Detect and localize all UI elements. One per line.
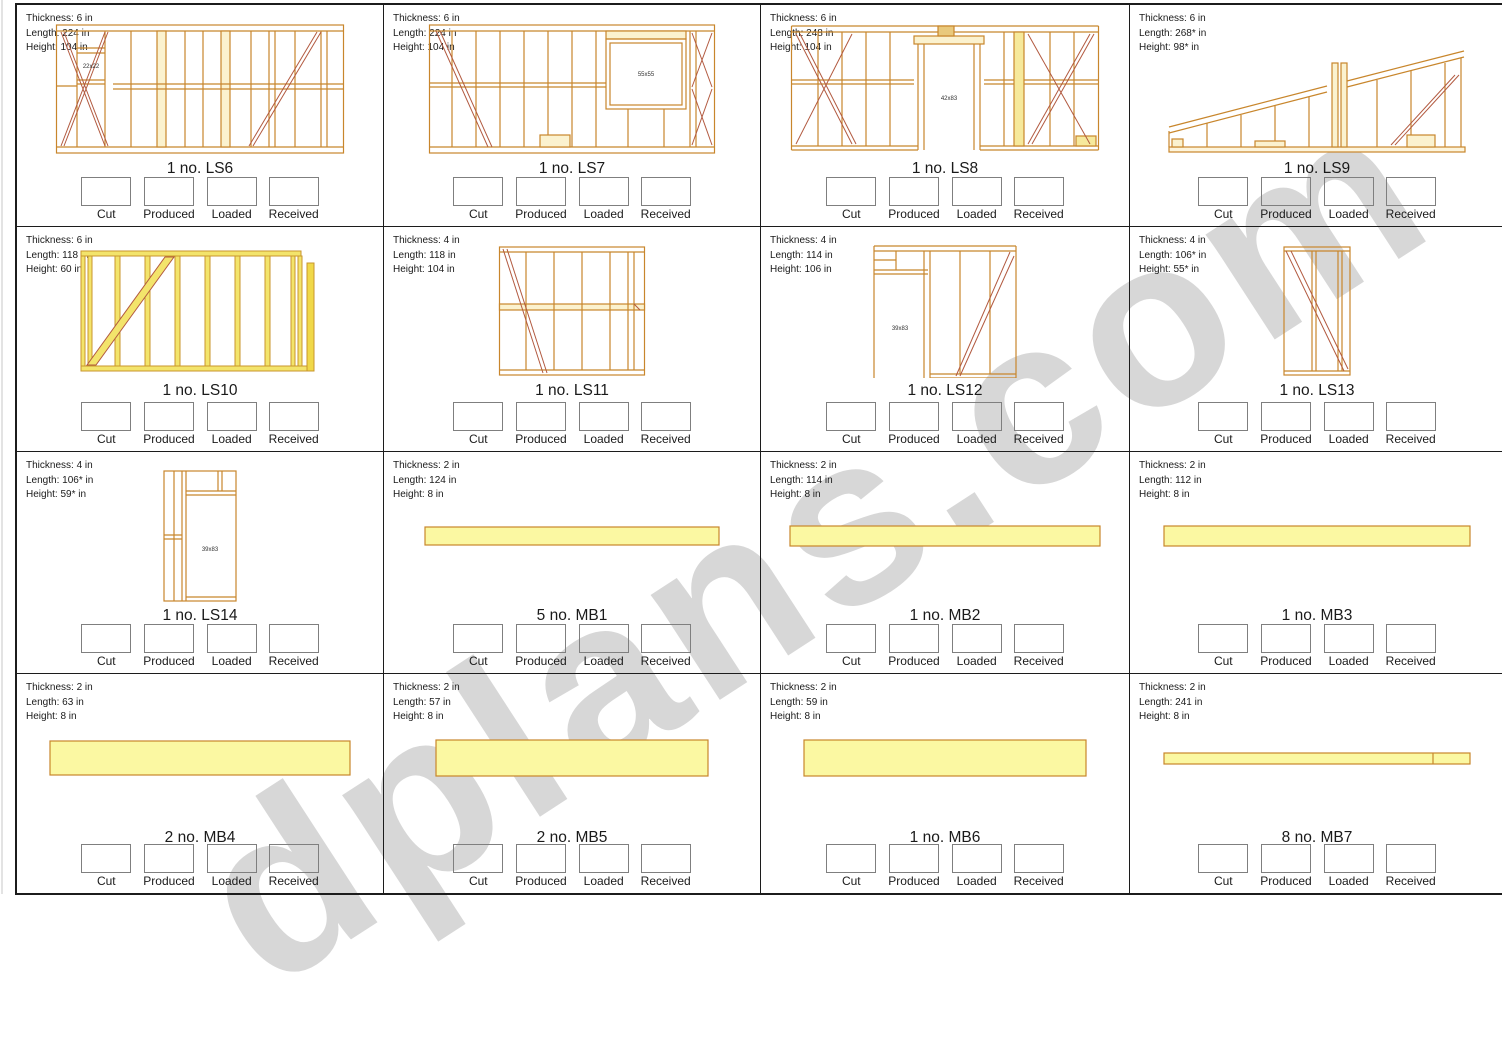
status-checkboxes: Cut Produced Loaded Received (384, 177, 760, 221)
checkbox-received-label: Received (1386, 874, 1436, 888)
framing-diagram-ls12: 39x83 (761, 241, 1129, 381)
checkbox-received[interactable] (1386, 624, 1436, 653)
checkbox-produced[interactable] (144, 844, 194, 873)
checkbox-cut-label: Cut (97, 207, 116, 221)
status-checkboxes: Cut Produced Loaded Received (1130, 402, 1502, 446)
checkbox-loaded[interactable] (207, 177, 257, 206)
checkbox-cut-label: Cut (97, 874, 116, 888)
checkbox-cut-label: Cut (97, 654, 116, 668)
checkbox-loaded-label: Loaded (584, 874, 624, 888)
checkbox-loaded[interactable] (952, 844, 1002, 873)
checkbox-cut-label: Cut (1214, 432, 1233, 446)
panel-cell-mb1: Thickness: 2 in Length: 124 in Height: 8… (384, 452, 761, 674)
checkbox-cut[interactable] (81, 844, 131, 873)
checkbox-received[interactable] (269, 177, 319, 206)
checkbox-produced-label: Produced (143, 432, 194, 446)
checkbox-produced-label: Produced (1260, 874, 1311, 888)
checkbox-produced[interactable] (144, 402, 194, 431)
opening-size-label: 39x83 (202, 547, 219, 553)
beam-diagram-mb2 (761, 466, 1129, 606)
checkbox-loaded[interactable] (579, 402, 629, 431)
panel-cell-ls7: Thickness: 6 in Length: 224 in Height: 1… (384, 5, 761, 227)
checkbox-received-label: Received (1014, 874, 1064, 888)
checkbox-received-label: Received (1386, 654, 1436, 668)
framing-diagram-ls14: 39x83 (17, 466, 383, 606)
checkbox-produced-label: Produced (888, 207, 939, 221)
checkbox-cut[interactable] (81, 402, 131, 431)
status-checkboxes: Cut Produced Loaded Received (1130, 844, 1502, 888)
panel-cell-mb4: Thickness: 2 in Length: 63 in Height: 8 … (17, 674, 384, 893)
checkbox-produced[interactable] (889, 844, 939, 873)
checkbox-produced[interactable] (1261, 177, 1311, 206)
checkbox-produced-label: Produced (515, 432, 566, 446)
cut-sheet-grid: Thickness: 6 in Length: 224 in Height: 1… (15, 3, 1502, 895)
checkbox-produced-label: Produced (515, 874, 566, 888)
panel-cell-ls9: Thickness: 6 in Length: 268* in Height: … (1130, 5, 1502, 227)
status-checkboxes: Cut Produced Loaded Received (17, 844, 383, 888)
status-checkboxes: Cut Produced Loaded Received (17, 624, 383, 668)
checkbox-received[interactable] (641, 402, 691, 431)
panel-label: 1 no. LS9 (1130, 160, 1502, 178)
checkbox-loaded-label: Loaded (212, 654, 252, 668)
checkbox-cut-label: Cut (97, 432, 116, 446)
checkbox-loaded[interactable] (579, 624, 629, 653)
checkbox-produced-label: Produced (143, 874, 194, 888)
checkbox-received[interactable] (1014, 402, 1064, 431)
checkbox-received[interactable] (641, 177, 691, 206)
checkbox-received[interactable] (641, 844, 691, 873)
panel-cell-ls13: Thickness: 4 in Length: 106* in Height: … (1130, 227, 1502, 452)
panel-label: 1 no. LS11 (384, 382, 760, 400)
checkbox-produced[interactable] (516, 177, 566, 206)
panel-label: 1 no. LS10 (17, 382, 383, 400)
checkbox-produced[interactable] (516, 402, 566, 431)
opening-size-label: 22x22 (83, 64, 100, 70)
checkbox-cut-label: Cut (842, 432, 861, 446)
checkbox-loaded-label: Loaded (957, 207, 997, 221)
page-left-edge (1, 0, 3, 894)
checkbox-received[interactable] (1014, 624, 1064, 653)
checkbox-cut-label: Cut (469, 207, 488, 221)
checkbox-cut[interactable] (453, 177, 503, 206)
checkbox-loaded-label: Loaded (1329, 654, 1369, 668)
checkbox-loaded[interactable] (1324, 402, 1374, 431)
beam-diagram-mb7 (1130, 688, 1502, 828)
checkbox-produced[interactable] (889, 624, 939, 653)
checkbox-produced-label: Produced (1260, 654, 1311, 668)
checkbox-loaded[interactable] (952, 624, 1002, 653)
framing-diagram-ls11 (384, 241, 760, 381)
checkbox-cut[interactable] (81, 624, 131, 653)
checkbox-cut-label: Cut (469, 874, 488, 888)
checkbox-received-label: Received (641, 207, 691, 221)
checkbox-produced[interactable] (1261, 624, 1311, 653)
checkbox-produced[interactable] (889, 177, 939, 206)
panel-cell-mb7: Thickness: 2 in Length: 241 in Height: 8… (1130, 674, 1502, 893)
panel-label: 1 no. LS14 (17, 607, 383, 625)
checkbox-loaded[interactable] (952, 402, 1002, 431)
checkbox-cut-label: Cut (842, 207, 861, 221)
checkbox-loaded[interactable] (952, 177, 1002, 206)
panel-cell-mb6: Thickness: 2 in Length: 59 in Height: 8 … (761, 674, 1130, 893)
status-checkboxes: Cut Produced Loaded Received (1130, 624, 1502, 668)
checkbox-loaded[interactable] (1324, 624, 1374, 653)
panel-label: 5 no. MB1 (384, 607, 760, 625)
checkbox-cut[interactable] (826, 402, 876, 431)
checkbox-produced[interactable] (889, 402, 939, 431)
panel-cell-mb5: Thickness: 2 in Length: 57 in Height: 8 … (384, 674, 761, 893)
checkbox-produced-label: Produced (1260, 432, 1311, 446)
status-checkboxes: Cut Produced Loaded Received (17, 402, 383, 446)
status-checkboxes: Cut Produced Loaded Received (761, 402, 1129, 446)
panel-label: 1 no. MB2 (761, 607, 1129, 625)
checkbox-received-label: Received (269, 874, 319, 888)
beam-diagram-mb1 (384, 466, 760, 606)
checkbox-loaded[interactable] (1324, 844, 1374, 873)
checkbox-loaded-label: Loaded (584, 432, 624, 446)
checkbox-received[interactable] (1014, 177, 1064, 206)
checkbox-received[interactable] (641, 624, 691, 653)
checkbox-loaded-label: Loaded (584, 207, 624, 221)
checkbox-received-label: Received (641, 654, 691, 668)
checkbox-received-label: Received (1014, 654, 1064, 668)
checkbox-cut-label: Cut (1214, 874, 1233, 888)
checkbox-received-label: Received (269, 432, 319, 446)
checkbox-loaded-label: Loaded (212, 207, 252, 221)
checkbox-received-label: Received (1014, 207, 1064, 221)
checkbox-produced-label: Produced (143, 654, 194, 668)
checkbox-produced[interactable] (144, 177, 194, 206)
checkbox-loaded[interactable] (579, 177, 629, 206)
checkbox-cut-label: Cut (1214, 654, 1233, 668)
panel-label: 1 no. LS13 (1130, 382, 1502, 400)
checkbox-received-label: Received (641, 432, 691, 446)
panel-cell-ls11: Thickness: 4 in Length: 118 in Height: 1… (384, 227, 761, 452)
beam-diagram-mb6 (761, 688, 1129, 828)
panel-cell-ls12: Thickness: 4 in Length: 114 in Height: 1… (761, 227, 1130, 452)
status-checkboxes: Cut Produced Loaded Received (761, 177, 1129, 221)
framing-diagram-ls9 (1130, 19, 1502, 159)
checkbox-cut[interactable] (1198, 402, 1248, 431)
status-checkboxes: Cut Produced Loaded Received (384, 624, 760, 668)
checkbox-cut-label: Cut (842, 874, 861, 888)
checkbox-loaded-label: Loaded (212, 874, 252, 888)
panel-label: 1 no. MB3 (1130, 607, 1502, 625)
checkbox-loaded-label: Loaded (1329, 432, 1369, 446)
status-checkboxes: Cut Produced Loaded Received (761, 844, 1129, 888)
checkbox-received-label: Received (1386, 207, 1436, 221)
checkbox-produced-label: Produced (888, 654, 939, 668)
beam-diagram-mb5 (384, 688, 760, 828)
checkbox-received[interactable] (1386, 402, 1436, 431)
checkbox-cut-label: Cut (842, 654, 861, 668)
panel-label: 1 no. LS12 (761, 382, 1129, 400)
checkbox-received[interactable] (269, 624, 319, 653)
panel-cell-mb2: Thickness: 2 in Length: 114 in Height: 8… (761, 452, 1130, 674)
checkbox-received-label: Received (269, 654, 319, 668)
checkbox-produced[interactable] (516, 624, 566, 653)
panel-cell-ls8: Thickness: 6 in Length: 248 in Height: 1… (761, 5, 1130, 227)
status-checkboxes: Cut Produced Loaded Received (17, 177, 383, 221)
beam-diagram-mb4 (17, 688, 383, 828)
status-checkboxes: Cut Produced Loaded Received (1130, 177, 1502, 221)
checkbox-cut[interactable] (826, 177, 876, 206)
opening-size-label: 42x83 (941, 96, 958, 102)
checkbox-cut[interactable] (453, 624, 503, 653)
panel-cell-mb3: Thickness: 2 in Length: 112 in Height: 8… (1130, 452, 1502, 674)
checkbox-cut[interactable] (81, 177, 131, 206)
panel-label: 1 no. LS7 (384, 160, 760, 178)
checkbox-cut[interactable] (1198, 844, 1248, 873)
opening-size-label: 55x55 (638, 72, 655, 78)
checkbox-cut[interactable] (453, 844, 503, 873)
framing-diagram-ls10 (17, 241, 383, 381)
framing-diagram-ls7: 55x55 (384, 19, 760, 159)
checkbox-received-label: Received (1386, 432, 1436, 446)
status-checkboxes: Cut Produced Loaded Received (384, 844, 760, 888)
checkbox-cut-label: Cut (469, 654, 488, 668)
opening-size-label: 39x83 (892, 326, 909, 332)
checkbox-produced[interactable] (516, 844, 566, 873)
framing-diagram-ls6: 22x22 (17, 19, 383, 159)
checkbox-received-label: Received (1014, 432, 1064, 446)
checkbox-loaded-label: Loaded (1329, 207, 1369, 221)
checkbox-cut-label: Cut (469, 432, 488, 446)
checkbox-loaded[interactable] (207, 844, 257, 873)
checkbox-loaded-label: Loaded (212, 432, 252, 446)
panel-label: 1 no. LS6 (17, 160, 383, 178)
checkbox-produced[interactable] (1261, 402, 1311, 431)
checkbox-produced-label: Produced (515, 207, 566, 221)
status-checkboxes: Cut Produced Loaded Received (384, 402, 760, 446)
checkbox-loaded[interactable] (1324, 177, 1374, 206)
checkbox-cut[interactable] (1198, 624, 1248, 653)
panel-cell-ls6: Thickness: 6 in Length: 224 in Height: 1… (17, 5, 384, 227)
checkbox-loaded[interactable] (207, 402, 257, 431)
checkbox-loaded-label: Loaded (957, 432, 997, 446)
checkbox-cut[interactable] (453, 402, 503, 431)
framing-diagram-ls8: 42x83 (761, 19, 1129, 159)
checkbox-received-label: Received (641, 874, 691, 888)
checkbox-produced[interactable] (1261, 844, 1311, 873)
checkbox-loaded-label: Loaded (1329, 874, 1369, 888)
checkbox-received[interactable] (269, 844, 319, 873)
checkbox-cut[interactable] (826, 844, 876, 873)
panel-cell-ls14: Thickness: 4 in Length: 106* in Height: … (17, 452, 384, 674)
checkbox-cut[interactable] (826, 624, 876, 653)
status-checkboxes: Cut Produced Loaded Received (761, 624, 1129, 668)
checkbox-loaded-label: Loaded (957, 874, 997, 888)
checkbox-loaded[interactable] (207, 624, 257, 653)
checkbox-loaded-label: Loaded (957, 654, 997, 668)
checkbox-produced-label: Produced (1260, 207, 1311, 221)
beam-diagram-mb3 (1130, 466, 1502, 606)
panel-label: 1 no. LS8 (761, 160, 1129, 178)
checkbox-produced-label: Produced (888, 432, 939, 446)
checkbox-produced[interactable] (144, 624, 194, 653)
framing-diagram-ls13 (1130, 241, 1502, 381)
checkbox-received[interactable] (1014, 844, 1064, 873)
checkbox-cut-label: Cut (1214, 207, 1233, 221)
checkbox-produced-label: Produced (143, 207, 194, 221)
checkbox-cut[interactable] (1198, 177, 1248, 206)
checkbox-received[interactable] (1386, 177, 1436, 206)
checkbox-received-label: Received (269, 207, 319, 221)
checkbox-produced-label: Produced (888, 874, 939, 888)
checkbox-loaded-label: Loaded (584, 654, 624, 668)
panel-cell-ls10: Thickness: 6 in Length: 118 in Height: 6… (17, 227, 384, 452)
checkbox-produced-label: Produced (515, 654, 566, 668)
checkbox-loaded[interactable] (579, 844, 629, 873)
checkbox-received[interactable] (269, 402, 319, 431)
checkbox-received[interactable] (1386, 844, 1436, 873)
